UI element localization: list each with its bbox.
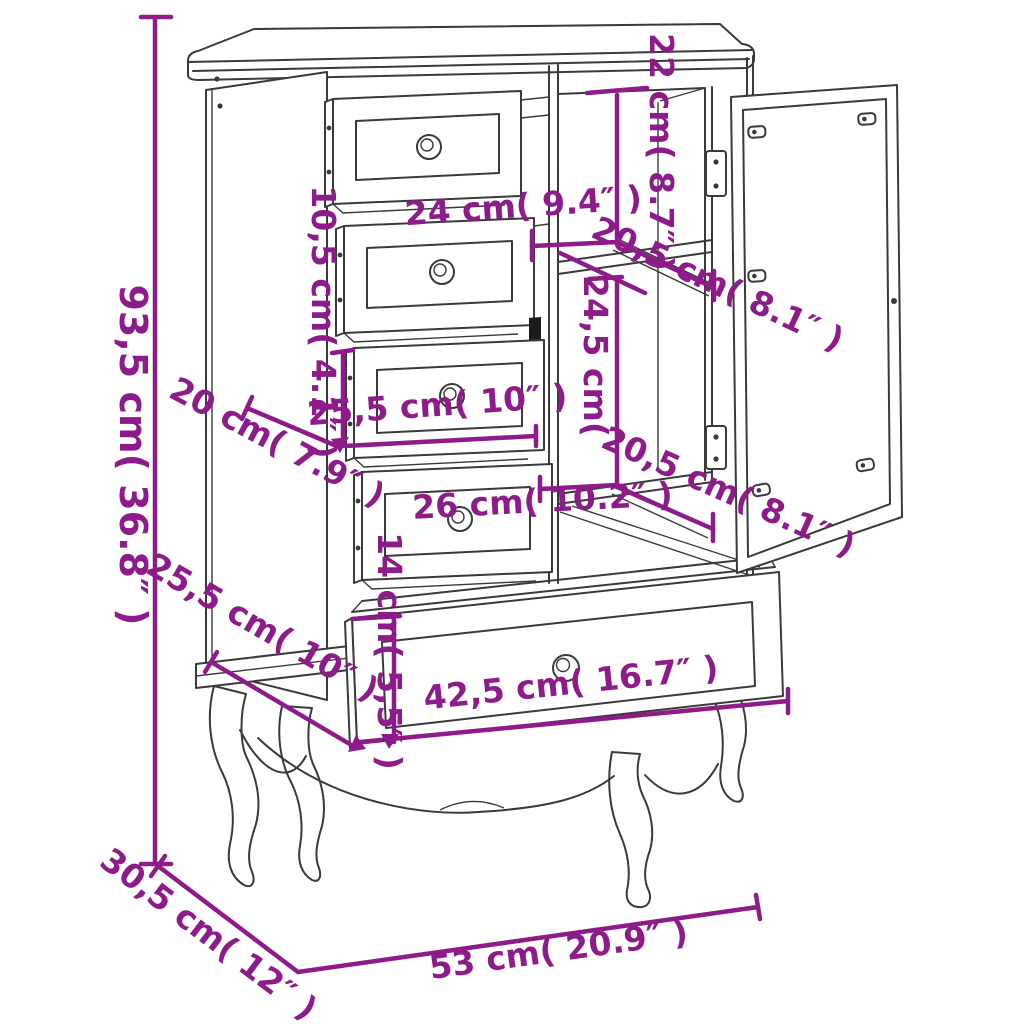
right-apron — [645, 764, 718, 794]
dimension-diagram: 93,5 cm( 36.8″ ) 30,5 cm( 12″ ) 53 cm( 2… — [0, 0, 1024, 1024]
label-bottom-drawer-height: 14 cm( 5,5″ ) — [370, 532, 409, 770]
glass-clip — [858, 113, 876, 125]
label-lower-compartment-height: 24,5 cm( — [576, 275, 615, 437]
label-base-width: 53 cm( 20.9″ ) — [427, 912, 691, 987]
label-base-depth: 30,5 cm( 12″ ) — [93, 840, 325, 1024]
door-keyhole — [891, 298, 897, 304]
drawer-1-knob — [417, 135, 441, 159]
drawer-2-knob — [430, 260, 454, 284]
rear-left-leg — [279, 706, 324, 881]
drawer-2 — [336, 218, 549, 342]
front-left-leg — [210, 686, 259, 886]
cabinet-line-drawing: 93,5 cm( 36.8″ ) 30,5 cm( 12″ ) 53 cm( 2… — [0, 0, 1024, 1024]
door-hinge-top — [706, 151, 726, 196]
glass-clip — [856, 458, 875, 472]
glass-clip — [748, 126, 766, 138]
bottom-drawer — [345, 557, 783, 748]
